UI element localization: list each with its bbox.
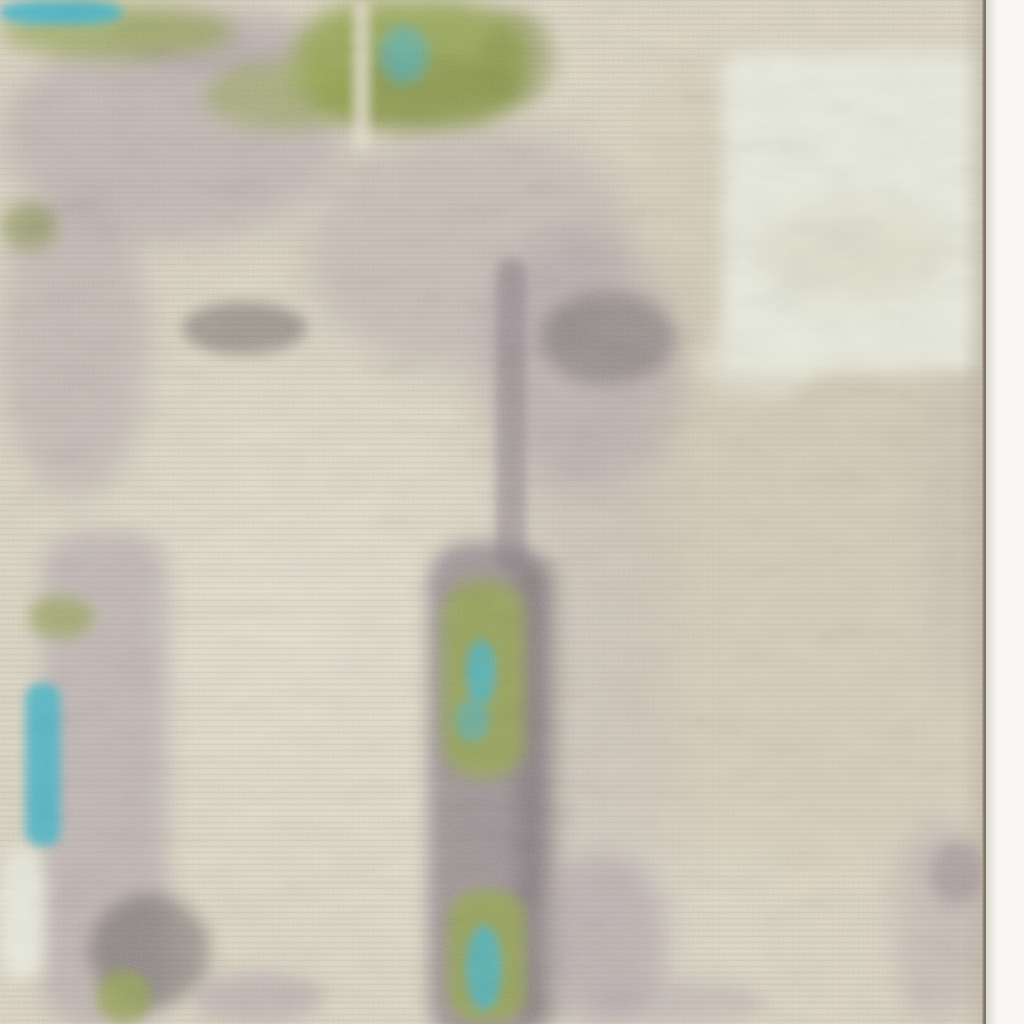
cream-tail-bottom-left <box>698 325 823 400</box>
charcoal-cluster-left <box>182 302 307 354</box>
teal-fleck-column-1 <box>466 640 496 704</box>
gray-streak-vertical <box>496 258 526 573</box>
blob-layer <box>0 0 986 1024</box>
green-fleck-bottom-left <box>96 970 152 1024</box>
teal-fleck-column-2 <box>456 698 490 742</box>
pale-streak-top <box>353 0 370 150</box>
cream-patch-left-bottom <box>0 850 44 978</box>
beige-erosion-in-cream <box>756 205 951 300</box>
mauve-speckle-bottom-2 <box>592 980 767 1024</box>
green-ledge-mid <box>205 60 365 130</box>
teal-bar-left <box>25 683 61 847</box>
teal-fleck-bottom <box>466 925 502 1011</box>
green-spot-left <box>28 596 94 638</box>
charcoal-cluster-center <box>540 292 675 384</box>
olive-fleck-row <box>480 10 555 105</box>
mauve-speckle-bottom-1 <box>192 972 324 1024</box>
teal-spot-top-mid <box>380 26 428 84</box>
rug-photograph <box>0 0 1024 1024</box>
olive-smudge-left-edge <box>0 202 58 250</box>
teal-patch-top-left <box>0 0 122 25</box>
photo-backdrop <box>986 0 1024 1024</box>
rug-surface <box>0 0 986 1024</box>
